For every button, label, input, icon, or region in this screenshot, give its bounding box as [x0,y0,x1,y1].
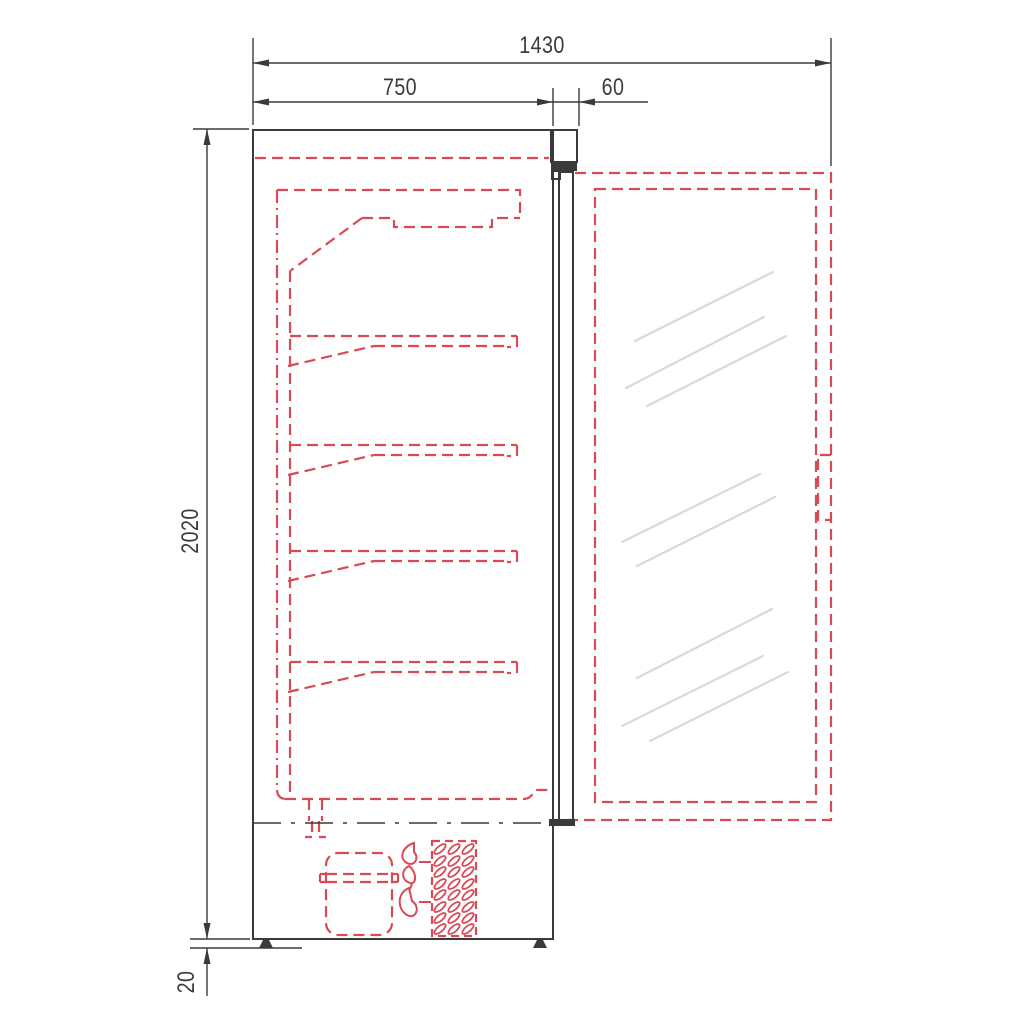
condenser-coil-loops [433,842,475,935]
arrow-right [537,99,553,106]
top-hinge-block [551,130,577,162]
liner-left-wall [277,190,285,799]
dim-label-overall-height: 2020 [177,508,205,553]
glass-reflection-line [637,609,772,678]
fan-blade [402,843,416,864]
evaporator-duct [277,190,520,271]
bottom-hinge-plate [549,819,575,826]
fan-icon [400,843,431,916]
shelf-row-2 [288,445,517,475]
arrow-left [579,99,595,106]
hidden-red-parts [255,158,831,936]
glass-reflection-line [650,672,788,741]
shelf-row-1 [288,336,517,366]
door-open-outline [565,173,831,820]
arrow-left [253,60,269,67]
door-closed [559,172,573,820]
compressor-mount-band [320,874,398,882]
fan-blade [403,866,415,883]
arrow-up [204,129,211,145]
door-handle [818,455,831,520]
fan-blade [400,888,417,916]
drawing-canvas [0,0,1024,1024]
glass-reflections [622,272,788,741]
shelf-row-3 [288,551,517,581]
leveling-foot-left [259,940,273,948]
glass-reflection-line [647,336,786,406]
glass-reflection-line [622,656,763,726]
liner-bottom [285,790,552,799]
dim-label-overall-width: 1430 [519,32,564,60]
arrow-down [204,923,211,939]
dimension-arrows [204,60,832,965]
top-hinge-plate [551,163,577,171]
arrow-left [253,99,269,106]
dim-label-door-thickness: 60 [602,74,625,102]
dim-label-body-depth: 750 [383,74,417,102]
glass-reflection-line [626,317,764,388]
leveling-foot-right [533,940,547,948]
cabinet-filled-parts [259,163,577,948]
compressor [326,853,392,935]
dim-label-ground-clearance: 20 [173,971,201,994]
arrow-right [815,60,831,67]
drain-pipe [305,799,326,837]
glass-reflection-line [637,497,775,566]
technical-drawing: 1430 750 60 2020 20 [0,0,1024,1024]
cabinet-body [253,130,553,939]
door-glass-panel [595,189,816,802]
shelf-row-4 [288,662,517,692]
glass-reflection-line [622,474,760,542]
glass-reflection-line [635,272,773,341]
arrow-up [204,948,211,964]
cabinet-outline [253,130,577,939]
